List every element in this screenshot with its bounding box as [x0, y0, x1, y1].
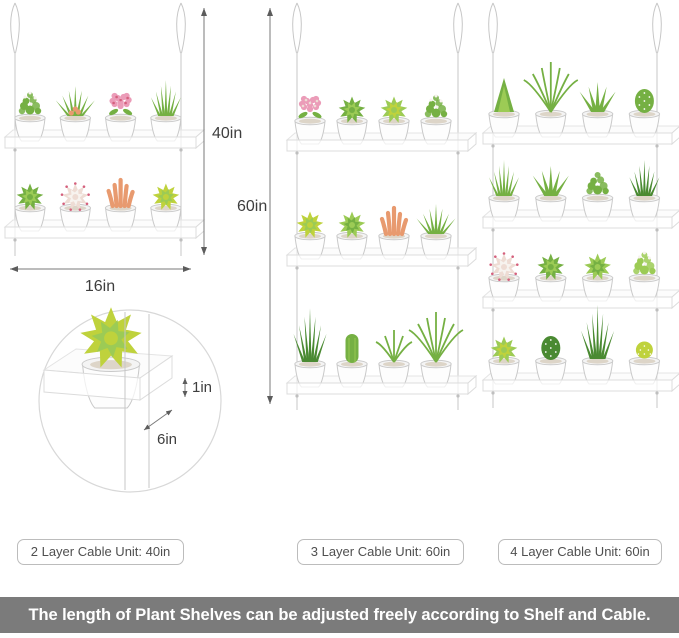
- hanging-cable-loop: [11, 3, 20, 53]
- plant-grass-tall: [294, 308, 327, 362]
- acrylic-shelf: [483, 160, 679, 232]
- dimension-height-2layer: 40in: [204, 8, 242, 255]
- cable-lock: [655, 391, 658, 394]
- hanging-cable-loop: [177, 3, 186, 53]
- plant-spiky: [56, 86, 95, 116]
- plant-cactus-round: [636, 342, 653, 359]
- cable-lock: [13, 238, 16, 241]
- plant-aloe: [580, 82, 616, 112]
- caption-4-layer-unit: 4 Layer Cable Unit: 60in: [498, 539, 662, 565]
- acrylic-shelf: [287, 95, 476, 155]
- plant-pine: [494, 78, 514, 112]
- hanging-cable-loop: [454, 3, 463, 53]
- plant-cactus-column: [346, 334, 359, 363]
- hanging-cable-loop: [293, 3, 302, 53]
- plant-coral: [109, 180, 133, 206]
- cable-lock: [456, 394, 459, 397]
- acrylic-shelf: [287, 204, 476, 270]
- plant-flower: [108, 93, 133, 116]
- plant-fern: [376, 330, 412, 362]
- hanging-cable-loop: [489, 3, 498, 53]
- hanging-cable-loop: [653, 3, 662, 53]
- plant-grass: [629, 160, 659, 196]
- plant-grass: [151, 80, 181, 116]
- cable-lock: [295, 266, 298, 269]
- plant-coral: [382, 208, 406, 234]
- footer-banner-text: The length of Plant Shelves can be adjus…: [29, 606, 651, 625]
- cable-lock: [491, 144, 494, 147]
- plant-fern-tall: [409, 312, 463, 362]
- plant-cactus-barrel: [541, 336, 560, 360]
- height-label-60in: 60in: [237, 198, 267, 215]
- shelf-unit-4-layer: [483, 3, 679, 408]
- dimension-height-3layer: 60in: [237, 8, 270, 404]
- acrylic-shelf: [5, 80, 204, 152]
- cable-lock: [179, 148, 182, 151]
- plant-grass-tall: [581, 305, 614, 359]
- cable-lock: [491, 228, 494, 231]
- cable-lock: [655, 308, 658, 311]
- width-label-16in: 16in: [85, 278, 115, 295]
- plant-fern-tall: [524, 62, 578, 112]
- height-label-40in: 40in: [212, 125, 242, 142]
- shelf-unit-3-layer: [287, 3, 476, 410]
- shelf-detail-callout: 1in 6in: [39, 307, 221, 492]
- cable-lock: [655, 228, 658, 231]
- caption-2-layer-unit: 2 Layer Cable Unit: 40in: [17, 539, 184, 565]
- plant-flower: [298, 96, 323, 119]
- footer-banner: The length of Plant Shelves can be adjus…: [0, 597, 679, 633]
- plant-bush: [633, 252, 655, 275]
- cable-lock: [456, 151, 459, 154]
- cable-lock: [179, 238, 182, 241]
- scene: 40in 60in 16in 1in 6in: [0, 0, 679, 530]
- cable-lock: [491, 391, 494, 394]
- acrylic-shelf: [483, 62, 679, 148]
- cable-lock: [13, 148, 16, 151]
- acrylic-shelf: [5, 180, 204, 242]
- plant-spiky: [417, 204, 456, 234]
- plant-bush: [19, 92, 41, 115]
- shelf-unit-2-layer: [5, 3, 204, 256]
- plant-bush: [425, 95, 447, 118]
- cable-lock: [295, 151, 298, 154]
- depth-label-6in: 6in: [157, 431, 177, 448]
- acrylic-shelf: [483, 252, 679, 312]
- product-infographic: 40in 60in 16in 1in 6in 2 Layer Cable Uni…: [0, 0, 679, 638]
- lip-label-1in: 1in: [192, 379, 212, 396]
- dimension-width-shelf: 16in: [10, 269, 191, 295]
- plant-aloe: [533, 166, 569, 196]
- cable-lock: [456, 266, 459, 269]
- acrylic-shelf: [287, 308, 476, 398]
- plant-bush: [586, 172, 608, 195]
- caption-3-layer-unit: 3 Layer Cable Unit: 60in: [297, 539, 464, 565]
- cable-lock: [655, 144, 658, 147]
- cable-lock: [491, 308, 494, 311]
- acrylic-shelf: [483, 305, 679, 395]
- plant-cactus-barrel: [635, 89, 654, 113]
- cable-lock: [295, 394, 298, 397]
